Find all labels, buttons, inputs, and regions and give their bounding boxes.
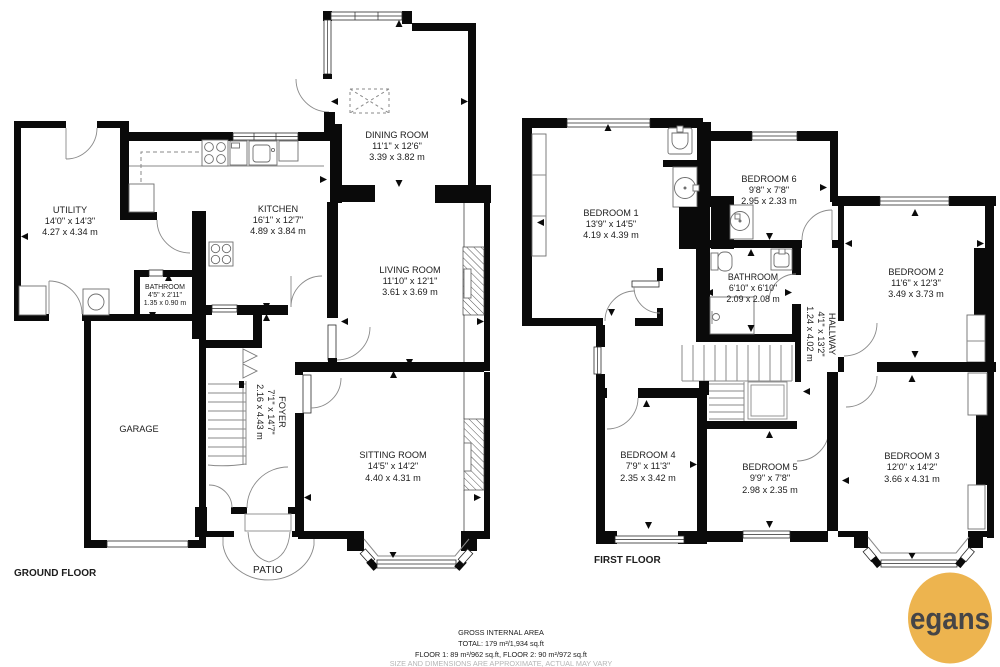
svg-text:14'5" x 14'2": 14'5" x 14'2": [368, 461, 418, 471]
svg-text:LIVING ROOM: LIVING ROOM: [379, 265, 440, 275]
svg-text:HALLWAY: HALLWAY: [827, 313, 837, 355]
svg-text:7'9" x 11'3": 7'9" x 11'3": [626, 461, 671, 471]
svg-text:11'1" x 12'6": 11'1" x 12'6": [372, 141, 422, 151]
svg-text:2.95 x 2.33 m: 2.95 x 2.33 m: [741, 196, 797, 206]
svg-text:GARAGE: GARAGE: [119, 424, 158, 434]
svg-text:BEDROOM 2: BEDROOM 2: [888, 267, 943, 277]
svg-text:1.35 x 0.90 m: 1.35 x 0.90 m: [144, 300, 187, 307]
svg-text:egans: egans: [910, 601, 990, 636]
svg-text:9'8" x 7'8": 9'8" x 7'8": [749, 185, 789, 195]
svg-text:KITCHEN: KITCHEN: [258, 204, 298, 214]
svg-text:7'1" x 14'7": 7'1" x 14'7": [266, 389, 276, 434]
svg-text:2.98 x 2.35 m: 2.98 x 2.35 m: [742, 485, 798, 495]
svg-text:SIZE AND DIMENSIONS ARE APPROX: SIZE AND DIMENSIONS ARE APPROXIMATE, ACT…: [390, 659, 613, 667]
svg-text:3.66 x 4.31 m: 3.66 x 4.31 m: [884, 474, 940, 484]
svg-text:4.19 x 4.39 m: 4.19 x 4.39 m: [583, 230, 639, 240]
svg-text:PATIO: PATIO: [253, 565, 283, 576]
svg-text:2.16 x 4.43 m: 2.16 x 4.43 m: [255, 384, 265, 440]
svg-text:BATHROOM: BATHROOM: [728, 272, 778, 282]
svg-text:DINING ROOM: DINING ROOM: [365, 130, 428, 140]
svg-text:4'5" x 2'11": 4'5" x 2'11": [148, 292, 182, 299]
svg-text:16'1" x 12'7": 16'1" x 12'7": [253, 215, 303, 225]
svg-text:BEDROOM 6: BEDROOM 6: [741, 174, 796, 184]
svg-text:BEDROOM 1: BEDROOM 1: [583, 208, 638, 218]
svg-text:4.40 x 4.31 m: 4.40 x 4.31 m: [365, 473, 421, 483]
svg-text:3.49 x 3.73 m: 3.49 x 3.73 m: [888, 289, 944, 299]
svg-text:2.09 x 2.08 m: 2.09 x 2.08 m: [726, 294, 779, 304]
svg-text:11'6" x 12'3": 11'6" x 12'3": [891, 278, 941, 288]
svg-text:6'10" x 6'10": 6'10" x 6'10": [729, 283, 777, 293]
svg-text:FIRST FLOOR: FIRST FLOOR: [594, 555, 661, 566]
svg-text:3.61 x 3.69 m: 3.61 x 3.69 m: [382, 287, 438, 297]
svg-text:TOTAL: 179 m²/1,934 sq.ft: TOTAL: 179 m²/1,934 sq.ft: [458, 639, 544, 648]
svg-text:3.39 x 3.82 m: 3.39 x 3.82 m: [369, 152, 425, 162]
svg-text:9'9" x 7'8": 9'9" x 7'8": [750, 473, 790, 483]
svg-text:FLOOR 1: 89 m²/962 sq.ft, FLOO: FLOOR 1: 89 m²/962 sq.ft, FLOOR 2: 90 m²…: [415, 650, 587, 659]
svg-text:UTILITY: UTILITY: [53, 205, 87, 215]
svg-text:13'9" x 14'5": 13'9" x 14'5": [586, 219, 636, 229]
svg-text:1.24 x 4.02 m: 1.24 x 4.02 m: [805, 306, 815, 362]
svg-text:BEDROOM 4: BEDROOM 4: [620, 450, 675, 460]
svg-text:14'0" x 14'3": 14'0" x 14'3": [45, 216, 95, 226]
svg-text:12'0" x 14'2": 12'0" x 14'2": [887, 462, 937, 472]
svg-text:11'10" x 12'1": 11'10" x 12'1": [383, 276, 438, 286]
svg-text:GROUND FLOOR: GROUND FLOOR: [14, 568, 97, 579]
svg-text:FOYER: FOYER: [277, 396, 287, 428]
svg-text:4.27 x 4.34 m: 4.27 x 4.34 m: [42, 227, 98, 237]
svg-text:GROSS INTERNAL AREA: GROSS INTERNAL AREA: [458, 628, 544, 637]
svg-text:4'1" x 13'2": 4'1" x 13'2": [816, 311, 826, 356]
svg-text:BATHROOM: BATHROOM: [145, 284, 185, 291]
svg-text:BEDROOM 3: BEDROOM 3: [884, 451, 939, 461]
svg-text:2.35 x 3.42 m: 2.35 x 3.42 m: [620, 473, 676, 483]
svg-text:4.89 x 3.84 m: 4.89 x 3.84 m: [250, 226, 306, 236]
svg-text:BEDROOM 5: BEDROOM 5: [742, 462, 797, 472]
svg-text:SITTING ROOM: SITTING ROOM: [359, 450, 426, 460]
